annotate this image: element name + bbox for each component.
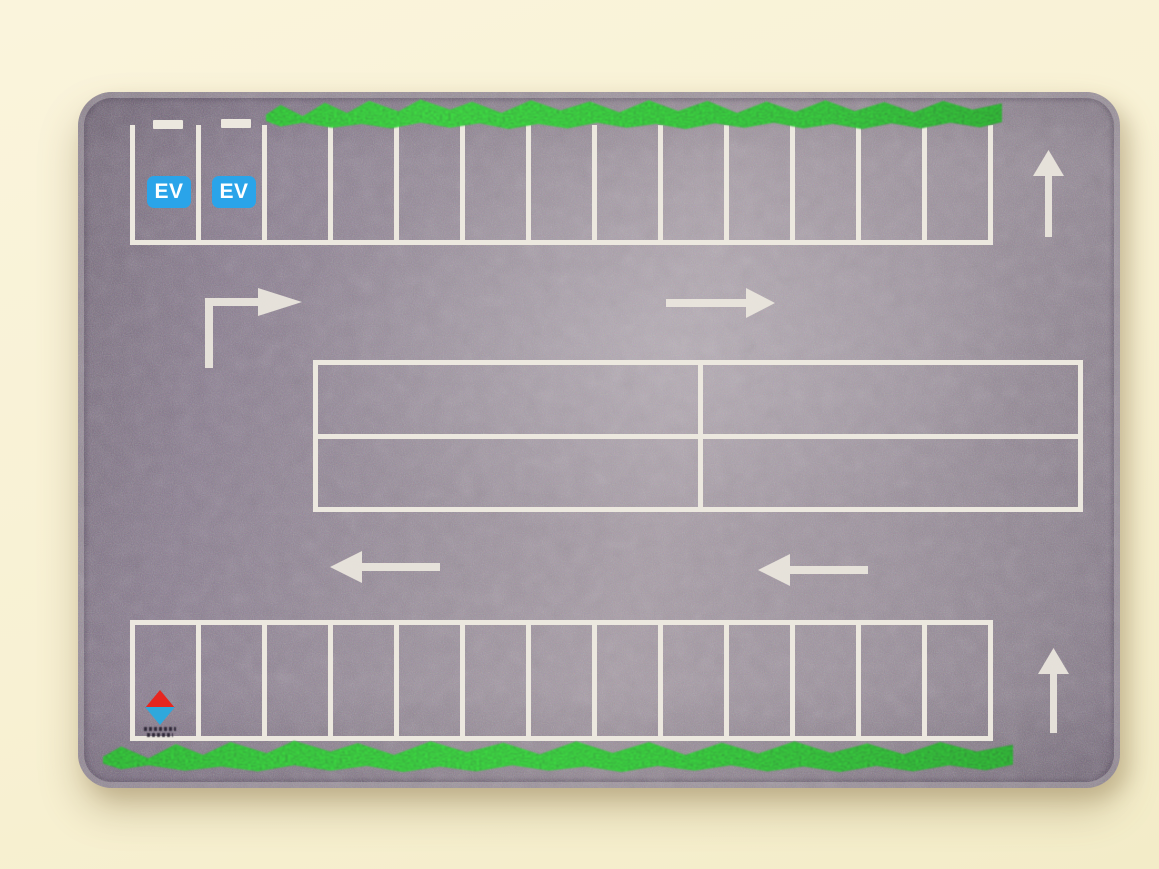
- parking-stall: [201, 625, 267, 736]
- grass-texture: [266, 97, 1002, 129]
- parking-stall: [795, 125, 861, 240]
- parking-stall: [663, 625, 729, 736]
- parking-stall: [267, 625, 333, 736]
- parking-stall: [597, 125, 663, 240]
- parking-stall: [663, 125, 729, 240]
- parking-stall: [729, 125, 795, 240]
- parking-stall: [861, 625, 927, 736]
- grass-texture: [103, 738, 1013, 772]
- ev-charger-dash-2: [221, 119, 251, 128]
- ev-charger-dash-1: [153, 120, 183, 129]
- logo-caption-illegible: [140, 727, 180, 737]
- ev-badge-label: EV: [154, 180, 183, 204]
- straight-right-arrow-icon: [666, 288, 775, 318]
- parking-stall: [795, 625, 861, 736]
- logo-triangle-up-icon: [145, 690, 175, 708]
- ev-badge-1: EV: [147, 176, 191, 208]
- parking-stall: [861, 125, 927, 240]
- grass-strip-top: [266, 97, 1002, 129]
- parking-mat: EV EV: [78, 92, 1120, 788]
- logo-triangle-down-icon: [145, 707, 175, 725]
- parking-stall: [927, 625, 993, 736]
- parking-stall: [729, 625, 795, 736]
- left-arrow-east-icon: [758, 554, 868, 586]
- parking-stall: [465, 625, 531, 736]
- center-block-horizontal-divider: [318, 434, 1078, 439]
- brand-logo: [140, 690, 180, 742]
- grass-strip-bottom: [103, 738, 1013, 772]
- parking-stall: [333, 625, 399, 736]
- parking-stall: [531, 625, 597, 736]
- up-arrow-south-icon: [1038, 648, 1069, 733]
- parking-stall: [927, 125, 993, 240]
- center-parking-block: [313, 360, 1083, 512]
- parking-stall: [597, 625, 663, 736]
- left-arrow-west-icon: [330, 551, 440, 583]
- ev-badge-2: EV: [212, 176, 256, 208]
- parking-stall: [399, 625, 465, 736]
- parking-row-bottom: [130, 620, 993, 741]
- up-arrow-north-icon: [1033, 150, 1064, 237]
- parking-stall: [531, 125, 597, 240]
- parking-stall: [399, 125, 465, 240]
- turn-right-arrow-icon: [205, 288, 302, 368]
- parking-row-top: [130, 125, 993, 245]
- parking-stall: [267, 125, 333, 240]
- table-background: EV EV: [0, 0, 1159, 869]
- ev-badge-label: EV: [219, 180, 248, 204]
- parking-stall: [333, 125, 399, 240]
- parking-stall: [465, 125, 531, 240]
